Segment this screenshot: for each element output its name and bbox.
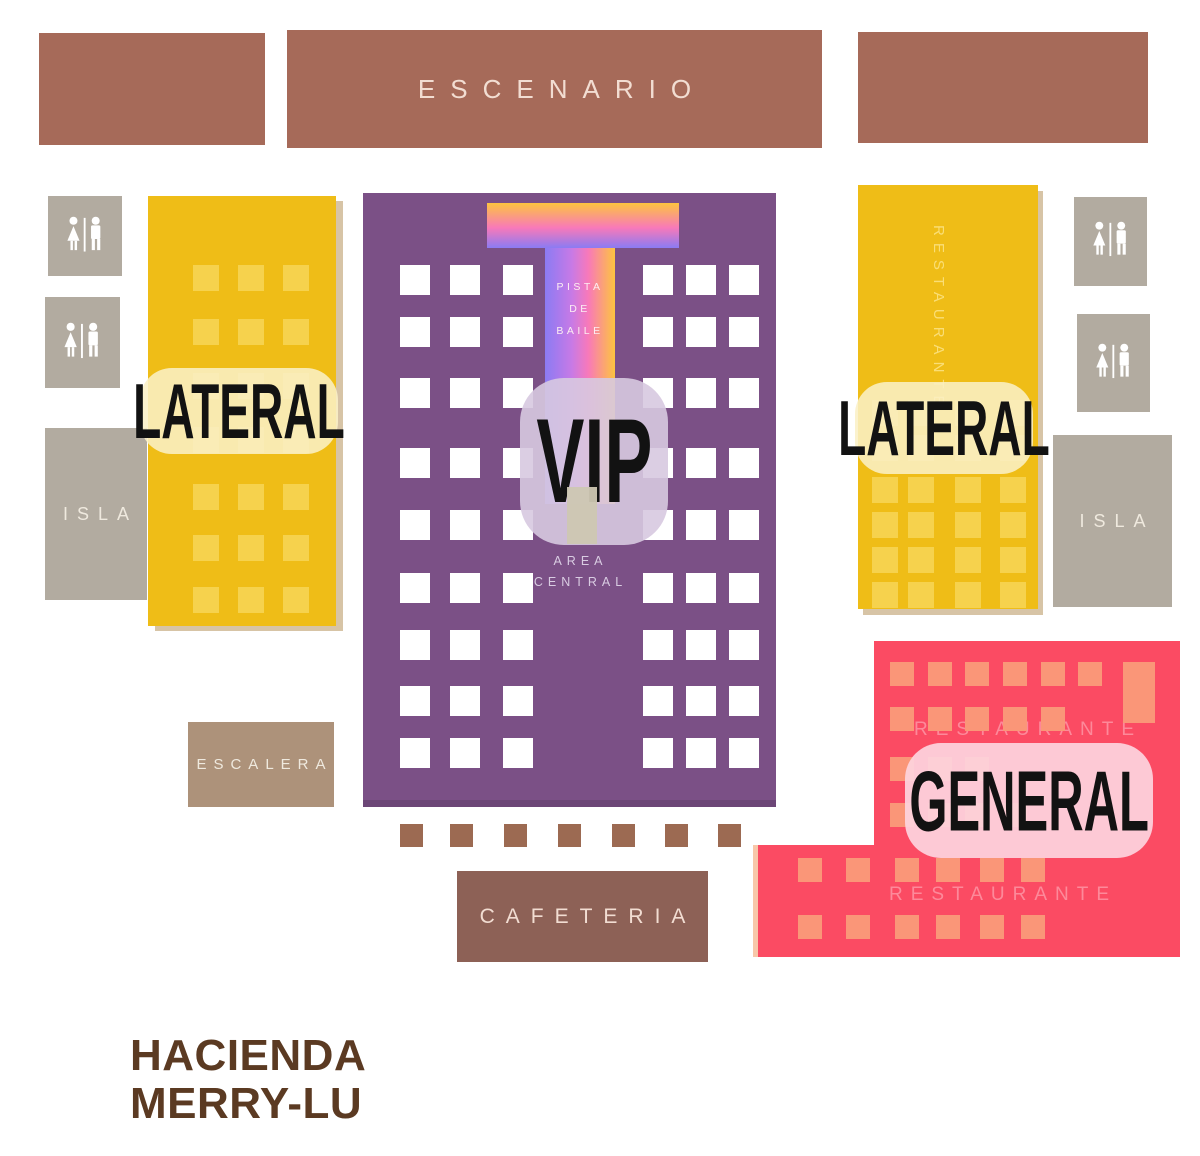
seat [955, 512, 981, 538]
seat [643, 317, 673, 347]
restroom-icon [59, 321, 106, 365]
seat [955, 582, 981, 608]
seat [643, 630, 673, 660]
vip-section[interactable]: PISTA DE BAILE VIP AREA CENTRAL [363, 193, 776, 807]
lateral-right-section[interactable]: RESTAURANTE LATERAL [858, 185, 1038, 609]
seat [193, 319, 219, 345]
seat [504, 824, 527, 847]
seat [686, 378, 716, 408]
venue-map: ESCENARIO ISLA LATERAL [0, 0, 1200, 1156]
lateral-left-label[interactable]: LATERAL [140, 368, 338, 454]
seat [686, 510, 716, 540]
seat [965, 707, 989, 731]
seat [955, 477, 981, 503]
seat [400, 265, 430, 295]
seat [1021, 915, 1045, 939]
seat [643, 265, 673, 295]
seat [846, 858, 870, 882]
seat [729, 448, 759, 478]
seat [872, 547, 898, 573]
cafeteria-block: CAFETERIA [457, 871, 708, 962]
seat [450, 686, 480, 716]
seat [450, 630, 480, 660]
seat [612, 824, 635, 847]
seat [400, 317, 430, 347]
seat [450, 824, 473, 847]
seat [238, 587, 264, 613]
seat [895, 858, 919, 882]
restroom-block-left-1 [48, 196, 122, 276]
restroom-icon [1088, 220, 1133, 262]
stage-left-block [39, 33, 265, 145]
seat [400, 824, 423, 847]
aisle-dots [400, 824, 741, 847]
seat [686, 738, 716, 768]
seat [798, 915, 822, 939]
seat [1000, 477, 1026, 503]
seat [890, 662, 914, 686]
seat [980, 915, 1004, 939]
seat [1041, 662, 1065, 686]
seat [193, 484, 219, 510]
seat [283, 319, 309, 345]
venue-logo: HACIENDA MERRY-LU [130, 1032, 366, 1127]
seat [895, 915, 919, 939]
seat [503, 738, 533, 768]
seat [400, 738, 430, 768]
seat [193, 587, 219, 613]
restroom-icon [1091, 342, 1136, 384]
seat [908, 477, 934, 503]
seat [1000, 547, 1026, 573]
seat [955, 547, 981, 573]
restroom-icon [62, 215, 108, 258]
seat [503, 265, 533, 295]
seat [450, 317, 480, 347]
seat [686, 448, 716, 478]
seat [936, 915, 960, 939]
seat [400, 573, 430, 603]
seat [193, 265, 219, 291]
seat [238, 484, 264, 510]
seat [1041, 707, 1065, 731]
seat [729, 378, 759, 408]
general-label-text: GENERAL [909, 758, 1149, 843]
seat [928, 662, 952, 686]
isla-left-block: ISLA [45, 428, 147, 600]
vip-walkway [567, 487, 597, 544]
seat [729, 317, 759, 347]
seat [1123, 662, 1155, 723]
cafeteria-label: CAFETERIA [480, 905, 697, 929]
general-label[interactable]: GENERAL [905, 743, 1153, 858]
seat [643, 686, 673, 716]
seat [798, 858, 822, 882]
seat [1000, 512, 1026, 538]
seat [450, 510, 480, 540]
seat [238, 535, 264, 561]
restroom-block-right-2 [1077, 314, 1150, 412]
escalera-label: ESCALERA [196, 756, 332, 773]
stage-label: ESCENARIO [403, 74, 706, 105]
lateral-left-section[interactable]: LATERAL [148, 196, 336, 626]
seat [686, 317, 716, 347]
seat [400, 510, 430, 540]
seat [238, 319, 264, 345]
seat [729, 510, 759, 540]
seat [908, 547, 934, 573]
area-central-label: AREA CENTRAL [458, 551, 703, 594]
seat [872, 477, 898, 503]
seat [1003, 707, 1027, 731]
stage-right-block [858, 32, 1148, 143]
seat [283, 587, 309, 613]
seat [558, 824, 581, 847]
seat [503, 686, 533, 716]
seat [965, 662, 989, 686]
seat [846, 915, 870, 939]
seat [729, 265, 759, 295]
stage-block: ESCENARIO [287, 30, 822, 148]
seat [890, 707, 914, 731]
isla-right-block: ISLA [1053, 435, 1172, 607]
isla-right-label: ISLA [1079, 511, 1154, 532]
seat [908, 512, 934, 538]
seat [400, 378, 430, 408]
seat [400, 630, 430, 660]
lateral-right-label[interactable]: LATERAL [855, 382, 1033, 474]
seat [1021, 858, 1045, 882]
seat [503, 317, 533, 347]
lateral-right-label-text: LATERAL [838, 389, 1050, 467]
seat [450, 738, 480, 768]
lateral-left-label-text: LATERAL [133, 372, 345, 450]
seat [686, 630, 716, 660]
seat [400, 448, 430, 478]
seat [283, 265, 309, 291]
seat [283, 484, 309, 510]
escalera-block: ESCALERA [188, 722, 334, 807]
general-section[interactable]: RESTAURANTE RESTAURANTE GENERAL [753, 641, 1180, 957]
seat [1000, 582, 1026, 608]
restroom-block-left-2 [45, 297, 120, 388]
seat [1078, 662, 1102, 686]
seat [193, 535, 219, 561]
venue-logo-line1: HACIENDA [130, 1032, 366, 1080]
seat [450, 378, 480, 408]
seat [729, 573, 759, 603]
seat [686, 265, 716, 295]
seat [686, 686, 716, 716]
seat [1003, 662, 1027, 686]
isla-left-label: ISLA [63, 504, 138, 525]
venue-logo-line2: MERRY-LU [130, 1080, 366, 1128]
seat [872, 512, 898, 538]
seat [908, 582, 934, 608]
restroom-block-right-1 [1074, 197, 1147, 286]
seat [450, 265, 480, 295]
seat [238, 265, 264, 291]
seat [718, 824, 741, 847]
seat [450, 448, 480, 478]
seat [872, 582, 898, 608]
seat [665, 824, 688, 847]
seat [283, 535, 309, 561]
seat [400, 686, 430, 716]
seat [503, 630, 533, 660]
seat [980, 858, 1004, 882]
seat [936, 858, 960, 882]
seat [643, 738, 673, 768]
seat [928, 707, 952, 731]
